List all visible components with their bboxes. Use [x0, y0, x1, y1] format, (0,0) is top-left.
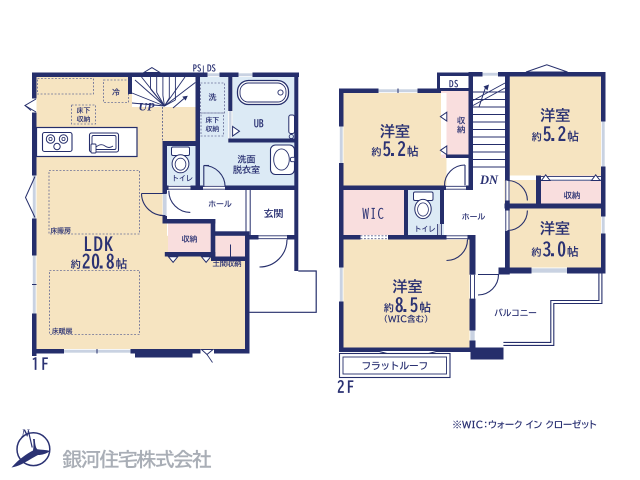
- svg-text:N: N: [21, 428, 31, 440]
- svg-text:DN: DN: [479, 173, 499, 187]
- svg-text:UP: UP: [139, 100, 156, 114]
